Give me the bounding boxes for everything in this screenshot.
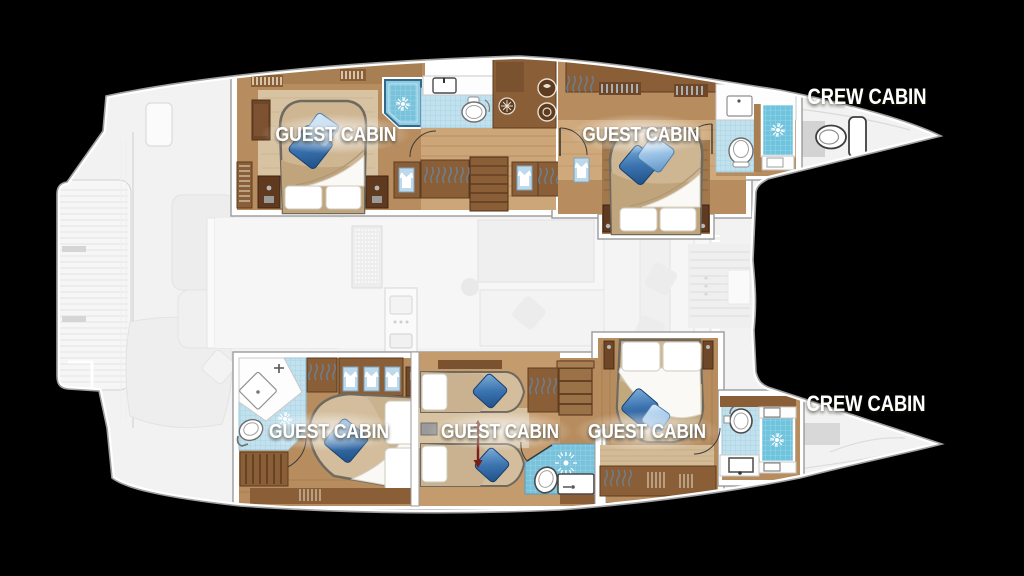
svg-text:GUEST CABIN: GUEST CABIN — [276, 124, 397, 146]
svg-text:GUEST CABIN: GUEST CABIN — [441, 421, 559, 443]
svg-text:CREW CABIN: CREW CABIN — [808, 84, 927, 109]
svg-text:GUEST CABIN: GUEST CABIN — [583, 124, 700, 146]
svg-text:GUEST CABIN: GUEST CABIN — [588, 421, 706, 443]
svg-text:CREW CABIN: CREW CABIN — [807, 391, 926, 416]
svg-text:GUEST CABIN: GUEST CABIN — [269, 421, 389, 443]
